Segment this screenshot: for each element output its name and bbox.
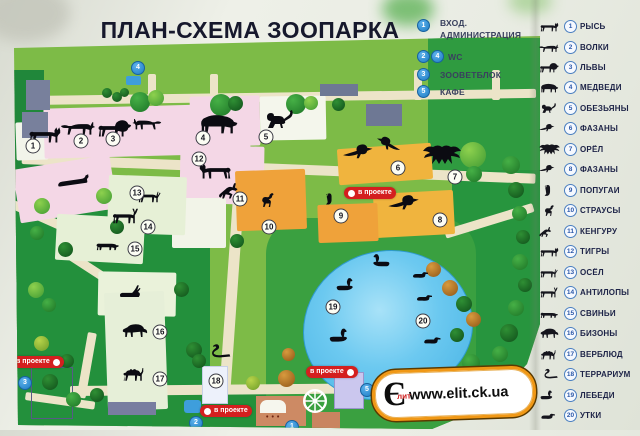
tree <box>508 300 524 316</box>
marker-20: 20 <box>416 314 431 329</box>
map-duck-icon <box>421 331 447 348</box>
pheasant-icon <box>538 163 561 176</box>
tree <box>42 298 56 312</box>
wc-south-icon <box>184 400 201 413</box>
snake-icon <box>538 368 561 381</box>
map-fox-icon <box>130 112 162 134</box>
bush <box>102 88 112 98</box>
tiger-icon <box>538 245 561 258</box>
legend-row-pigs: 15СВИНЬИ <box>538 303 638 323</box>
marker-1: 1 <box>26 139 41 154</box>
marker-13: 13 <box>130 186 145 201</box>
tree <box>502 156 520 174</box>
parrot-icon <box>538 184 561 197</box>
facility-marker-zoovet: 3 <box>18 376 32 390</box>
tree <box>466 166 482 182</box>
building <box>366 104 402 126</box>
legend-row-ducks: 20УТКИ <box>538 405 638 425</box>
tree <box>512 206 527 221</box>
lion-icon <box>538 61 561 74</box>
marker-15: 15 <box>128 242 143 257</box>
tree <box>282 348 295 361</box>
tree <box>450 328 464 342</box>
map-swan-icon <box>362 252 392 270</box>
pig-icon <box>538 307 561 320</box>
monkey-icon <box>538 102 561 115</box>
tree <box>508 182 524 198</box>
marker-10: 10 <box>262 220 277 235</box>
building <box>320 84 358 96</box>
facility-marker-wc-south: 2 <box>189 416 203 430</box>
building <box>26 80 50 110</box>
dot <box>347 369 354 376</box>
map-duck-icon <box>414 289 438 305</box>
facility-marker-entrance: 1 <box>285 420 299 434</box>
tree <box>456 296 472 312</box>
page-title: ПЛАН-СХЕМА ЗООПАРКА <box>64 17 436 44</box>
kangaroo-icon <box>538 225 561 238</box>
dot <box>204 408 211 415</box>
legend-row-wolves: 2ВОЛКИ <box>538 37 638 57</box>
legend-row-pheasants: 6ФАЗАНЫ <box>538 118 638 138</box>
legend-number-5: 5 <box>417 85 430 98</box>
tree <box>230 234 244 248</box>
swan-icon <box>538 389 561 402</box>
marker-8: 8 <box>433 213 448 228</box>
watermark-url: www.elit.ck.ua <box>409 384 509 403</box>
tree <box>174 282 189 297</box>
legend-row-camel: 17ВЕРБЛЮД <box>538 344 638 364</box>
tree <box>42 374 58 390</box>
legend-number-1: 1 <box>417 19 430 32</box>
tree <box>58 242 73 257</box>
legend-label: ВХОД. <box>440 18 467 28</box>
entrance-windows: ••• <box>266 414 282 421</box>
legend-row-parrots: 9ПОПУГАИ <box>538 180 638 200</box>
tree <box>304 96 318 110</box>
legend-row-tigers: 12ТИГРЫ <box>538 241 638 261</box>
legend-label: ЗООВЕТБЛОК <box>440 70 501 80</box>
tree <box>90 388 104 402</box>
camel-icon <box>538 348 561 361</box>
building <box>108 402 156 415</box>
legend-label: АДМИНИСТРАЦИЯ <box>440 30 521 40</box>
map-antelope-icon <box>110 202 142 230</box>
map-bison-icon <box>120 316 150 346</box>
bison-icon <box>538 327 561 340</box>
tree <box>246 376 260 390</box>
enclosure-bison-camel <box>104 291 168 411</box>
tree <box>466 312 481 327</box>
tree <box>516 230 530 244</box>
marker-7: 7 <box>448 170 463 185</box>
tree <box>28 282 44 298</box>
map-snake-icon <box>204 332 234 372</box>
tree <box>66 392 81 407</box>
tree <box>512 254 528 270</box>
zoo-map-sign-photo: { "title": "ПЛАН-СХЕМА ЗООПАРКА", "facil… <box>0 0 640 430</box>
elit-logo-sub: лит <box>397 391 411 400</box>
project-tag: в проекте <box>12 356 64 368</box>
map-swan-icon <box>334 276 364 294</box>
marker-9: 9 <box>334 209 349 224</box>
elit-logo: Єлит <box>382 377 406 412</box>
tree <box>492 346 508 362</box>
marker-18: 18 <box>209 374 224 389</box>
lynx-icon <box>538 20 561 33</box>
antelope-icon <box>538 286 561 299</box>
tree <box>460 142 486 168</box>
legend-number-3: 3 <box>417 68 430 81</box>
map-camel-icon <box>120 358 150 390</box>
tree <box>34 198 50 214</box>
marker-2: 2 <box>74 134 89 149</box>
legend-row-bison: 16БИЗОНЫ <box>538 323 638 343</box>
marker-11: 11 <box>233 192 248 207</box>
donkey-icon <box>538 266 561 279</box>
project-tag: в проекте <box>200 405 252 417</box>
map-swan-icon <box>327 326 359 346</box>
map-duck-icon <box>410 266 434 282</box>
map-ostrich-icon <box>254 178 282 222</box>
tree <box>278 370 295 387</box>
marker-3: 3 <box>106 132 121 147</box>
map-pig-icon <box>94 236 122 253</box>
tree <box>442 280 458 296</box>
legend-row-eagle: 7ОРЁЛ <box>538 139 638 159</box>
marker-19: 19 <box>326 300 341 315</box>
tree <box>500 324 518 342</box>
legend-row-lynx: 1РЫСЬ <box>538 16 638 36</box>
legend-number-2: 2 <box>417 50 430 63</box>
legend-row-ostriches: 10СТРАУСЫ <box>538 200 638 220</box>
map-eagle-icon <box>422 140 462 170</box>
tree <box>130 92 150 112</box>
legend-label: КАФЕ <box>440 87 465 97</box>
legend-row-antelopes: 14АНТИЛОПЫ <box>538 282 638 302</box>
watermark: Єлит www.elit.ck.ua <box>371 365 537 422</box>
tree <box>332 98 345 111</box>
legend-row-donkey: 13ОСЁЛ <box>538 262 638 282</box>
marker-12: 12 <box>192 152 207 167</box>
project-tag: в проекте <box>306 366 358 378</box>
marker-16: 16 <box>153 325 168 340</box>
legend-row-pheasants-2: 8ФАЗАНЫ <box>538 159 638 179</box>
legend-row-terrarium: 18ТЕРРАРИУМ <box>538 364 638 384</box>
map-rabbit-icon <box>116 282 150 302</box>
wheel-icon <box>302 388 328 414</box>
wc-north-building <box>126 76 141 85</box>
tree <box>148 90 164 106</box>
marker-4: 4 <box>196 131 211 146</box>
legend-label: WC <box>448 52 463 62</box>
tree <box>34 336 49 351</box>
bush <box>120 88 129 97</box>
eagle-icon <box>538 143 561 156</box>
legend-row-swans: 19ЛЕБЕДИ <box>538 385 638 405</box>
legend-row-kangaroo: 11КЕНГУРУ <box>538 221 638 241</box>
dot <box>53 359 60 366</box>
facility-marker-wc-north: 4 <box>131 61 145 75</box>
tree <box>30 226 44 240</box>
ostrich-icon <box>538 204 561 217</box>
project-tag: в проекте <box>344 187 396 199</box>
legend-row-bears: 4МЕДВЕДИ <box>538 77 638 97</box>
marker-5: 5 <box>259 130 274 145</box>
photo-blur <box>0 0 70 42</box>
wolf-icon <box>538 41 561 54</box>
duck-icon <box>538 409 561 422</box>
entrance-kiosk <box>312 412 340 436</box>
marker-17: 17 <box>153 372 168 387</box>
legend-row-lions: 3ЛЬВЫ <box>538 57 638 77</box>
bear-icon <box>538 81 561 94</box>
legend-row-monkeys: 5ОБЕЗЬЯНЫ <box>538 98 638 118</box>
entrance-gate <box>260 400 286 413</box>
marker-6: 6 <box>391 161 406 176</box>
marker-14: 14 <box>141 220 156 235</box>
legend-number-4: 4 <box>431 50 444 63</box>
pheasant-icon <box>538 122 561 135</box>
dot <box>348 190 355 197</box>
